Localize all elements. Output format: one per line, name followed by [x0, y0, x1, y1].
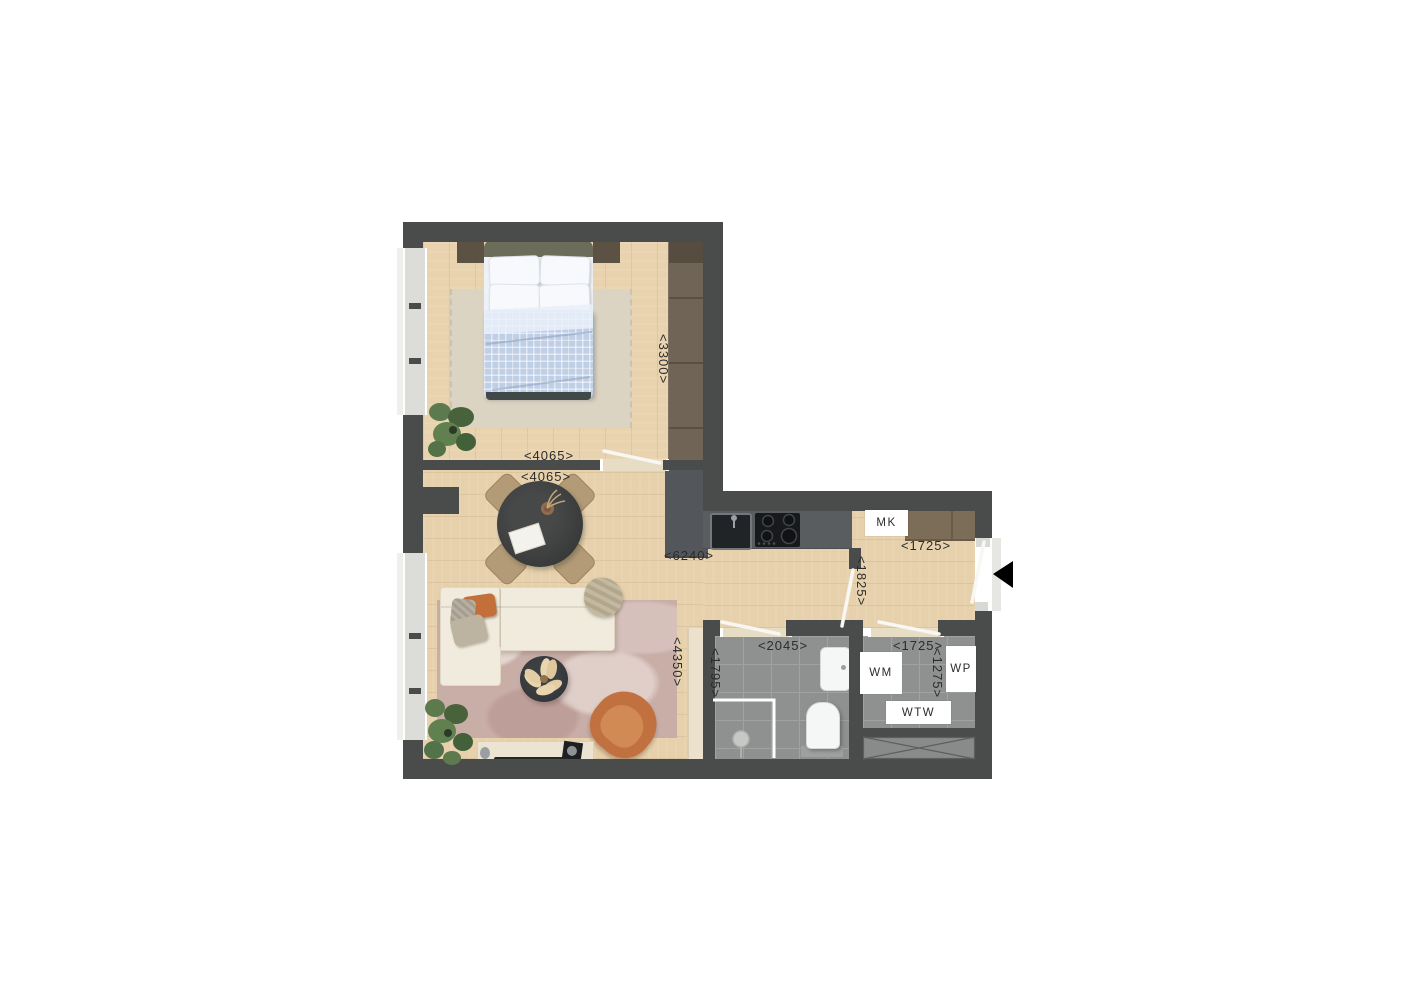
bedroom-plant: [428, 403, 476, 457]
heat-recovery-label: WTW: [886, 701, 951, 724]
dimension-living-width: <4065>: [511, 470, 581, 483]
dimension-kitchen-width: <6240>: [660, 549, 718, 562]
dimension-living-height: <4350>: [670, 630, 684, 694]
dimension-tech-height: <1275>: [930, 648, 944, 698]
dimension-hall-width: <1725>: [897, 539, 955, 552]
floor-plan-canvas: <4065> <4065> <3300> <6240> <1725> <1825…: [0, 0, 1414, 1000]
cooktop-knobs: [758, 542, 776, 545]
entrance-door-leaf: [972, 542, 984, 602]
meter-cupboard-text: MK: [876, 517, 896, 529]
heat-pump-label: WP: [946, 646, 976, 692]
shower-drain: [733, 731, 749, 747]
bathroom-door-leaf: [722, 622, 779, 634]
burner: [762, 531, 773, 542]
burner: [782, 529, 797, 544]
washing-machine-label: WM: [860, 652, 902, 694]
burner: [763, 516, 774, 527]
meter-cupboard-label: MK: [865, 510, 908, 536]
duvet-fold-line: [486, 332, 592, 344]
dimension-bathroom-height: <1795>: [708, 644, 722, 702]
washing-machine-text: WM: [869, 667, 892, 679]
entrance-arrow: [993, 561, 1013, 588]
heat-pump-text: WP: [950, 663, 972, 675]
hall-door-leaf: [842, 570, 853, 626]
heat-recovery-text: WTW: [902, 707, 935, 719]
dimension-bathroom-width: <2045>: [752, 639, 814, 652]
dimension-bedroom-width: <4065>: [514, 449, 584, 462]
shower-screen: [713, 700, 774, 758]
flower-decor: [522, 658, 564, 698]
duvet-fold-line: [492, 377, 590, 390]
living-plant: [424, 699, 473, 765]
bedroom-door-leaf: [604, 451, 660, 463]
burner: [784, 515, 795, 526]
tech-door-leaf: [879, 622, 939, 634]
table-sprig: [547, 490, 565, 508]
dimension-hall-height: <1825>: [854, 552, 868, 610]
dimension-bedroom-height: <3300>: [656, 330, 670, 388]
